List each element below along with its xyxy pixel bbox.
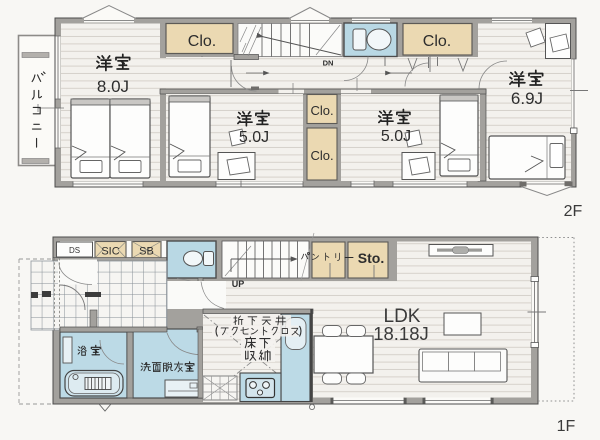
svg-text:5.0J: 5.0J [381, 128, 411, 145]
svg-text:DS: DS [69, 246, 80, 255]
svg-text:Sto.: Sto. [358, 250, 384, 266]
svg-text:Clo.: Clo. [188, 33, 216, 50]
svg-text:Clo.: Clo. [310, 148, 333, 163]
svg-text:UP: UP [232, 279, 245, 289]
svg-text:SB: SB [139, 246, 154, 258]
svg-text:2F: 2F [564, 203, 583, 220]
svg-text:1F: 1F [557, 418, 576, 435]
svg-text:8.0J: 8.0J [97, 77, 129, 96]
svg-text:6.9J: 6.9J [511, 89, 543, 108]
svg-text:Clo.: Clo. [310, 103, 333, 118]
svg-text:5.0J: 5.0J [239, 129, 269, 146]
svg-text:Clo.: Clo. [423, 33, 451, 50]
svg-text:DN: DN [323, 59, 334, 68]
svg-text:SIC: SIC [101, 246, 119, 258]
svg-text:18.18J: 18.18J [373, 323, 429, 344]
